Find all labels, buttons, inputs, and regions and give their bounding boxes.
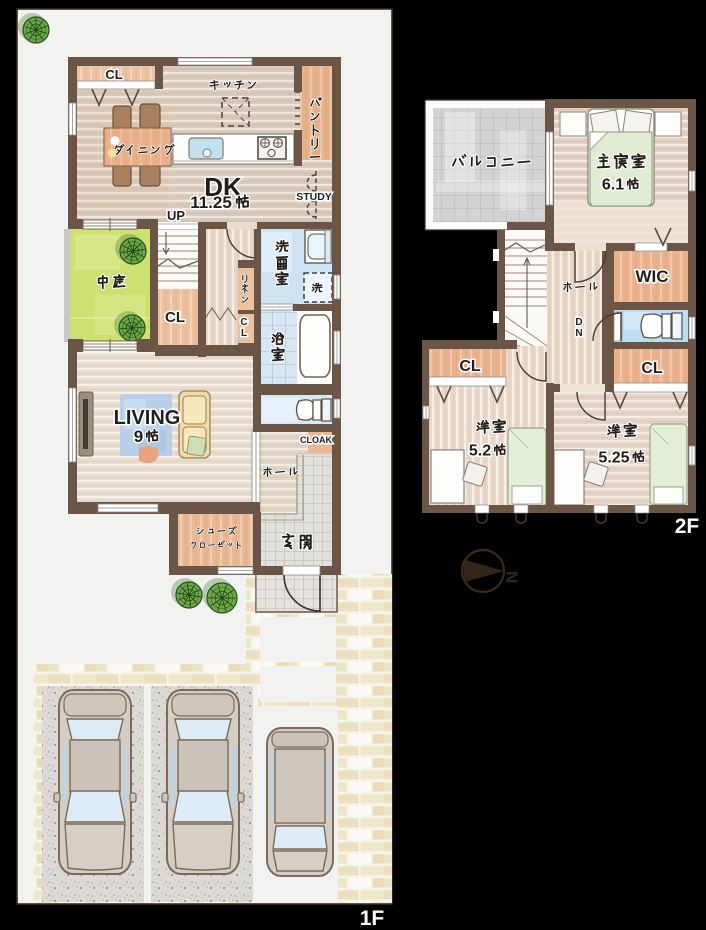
svg-text:UP: UP xyxy=(167,208,185,223)
svg-text:5.25: 5.25 xyxy=(598,450,629,467)
svg-text:11.25: 11.25 xyxy=(190,193,232,212)
svg-text:9: 9 xyxy=(134,427,143,446)
svg-text:CLOAK: CLOAK xyxy=(300,435,332,445)
svg-text:CL: CL xyxy=(165,309,185,326)
svg-text:STUDY: STUDY xyxy=(296,191,332,203)
svg-text:D: D xyxy=(575,317,582,328)
svg-text:N: N xyxy=(575,328,582,339)
svg-text:C: C xyxy=(240,317,247,328)
svg-text:N: N xyxy=(502,571,521,583)
svg-text:6.1: 6.1 xyxy=(602,177,624,194)
svg-text:CL: CL xyxy=(105,67,122,82)
svg-text:1F: 1F xyxy=(360,907,385,930)
svg-text:CL: CL xyxy=(459,358,481,375)
svg-text:5.2: 5.2 xyxy=(469,443,491,460)
svg-text:WIC: WIC xyxy=(635,267,668,286)
svg-text:CL: CL xyxy=(641,360,663,377)
svg-text:L: L xyxy=(241,328,247,339)
svg-text:2F: 2F xyxy=(675,515,700,538)
svg-text:LIVING: LIVING xyxy=(114,407,181,429)
